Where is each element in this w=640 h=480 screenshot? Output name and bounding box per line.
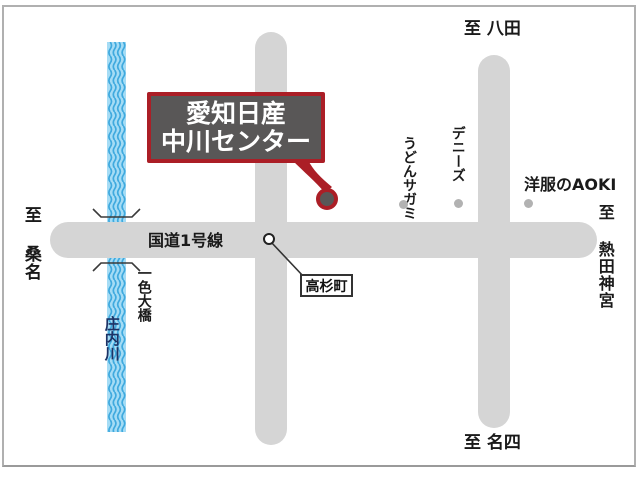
map-line-overlay: [0, 0, 640, 480]
intersection-marker-icon: [263, 233, 275, 245]
poi-dot-udon-sagami-icon: [399, 200, 408, 209]
takasugi-leader-line: [271, 242, 304, 277]
poi-label-dennys: デニーズ: [450, 126, 465, 182]
dealership-name-line1: 愛知日産: [186, 100, 286, 127]
route1-label: 国道1号線: [148, 233, 223, 250]
bridge-name-label: 一色大橋: [136, 266, 151, 322]
river-name-label: 庄内川: [103, 316, 119, 361]
bridge-symbol-south-icon: [93, 263, 140, 271]
intersection-label: 高杉町: [306, 276, 348, 296]
destination-west: 至 桑名: [21, 206, 39, 281]
bridge-symbol-north-icon: [93, 209, 140, 217]
dealership-location-marker-icon: [316, 188, 338, 210]
destination-south: 至 名四: [464, 435, 521, 453]
destination-east: 至 熱田神宮: [596, 204, 613, 309]
poi-dot-dennys-icon: [454, 199, 463, 208]
dealership-callout: 愛知日産 中川センター: [147, 92, 325, 163]
destination-north: 至 八田: [464, 21, 521, 39]
poi-label-udon-sagami: うどんサガミ: [383, 136, 417, 198]
poi-label-aoki: 洋服のAOKI: [524, 177, 616, 194]
map-canvas: 愛知日産 中川センター 国道1号線 高杉町 至 八田 至 名四 至 桑名 至 熱…: [0, 0, 640, 480]
dealership-name-line2: 中川センター: [161, 127, 311, 156]
intersection-label-box: 高杉町: [300, 274, 353, 297]
poi-dot-aoki-icon: [524, 199, 533, 208]
